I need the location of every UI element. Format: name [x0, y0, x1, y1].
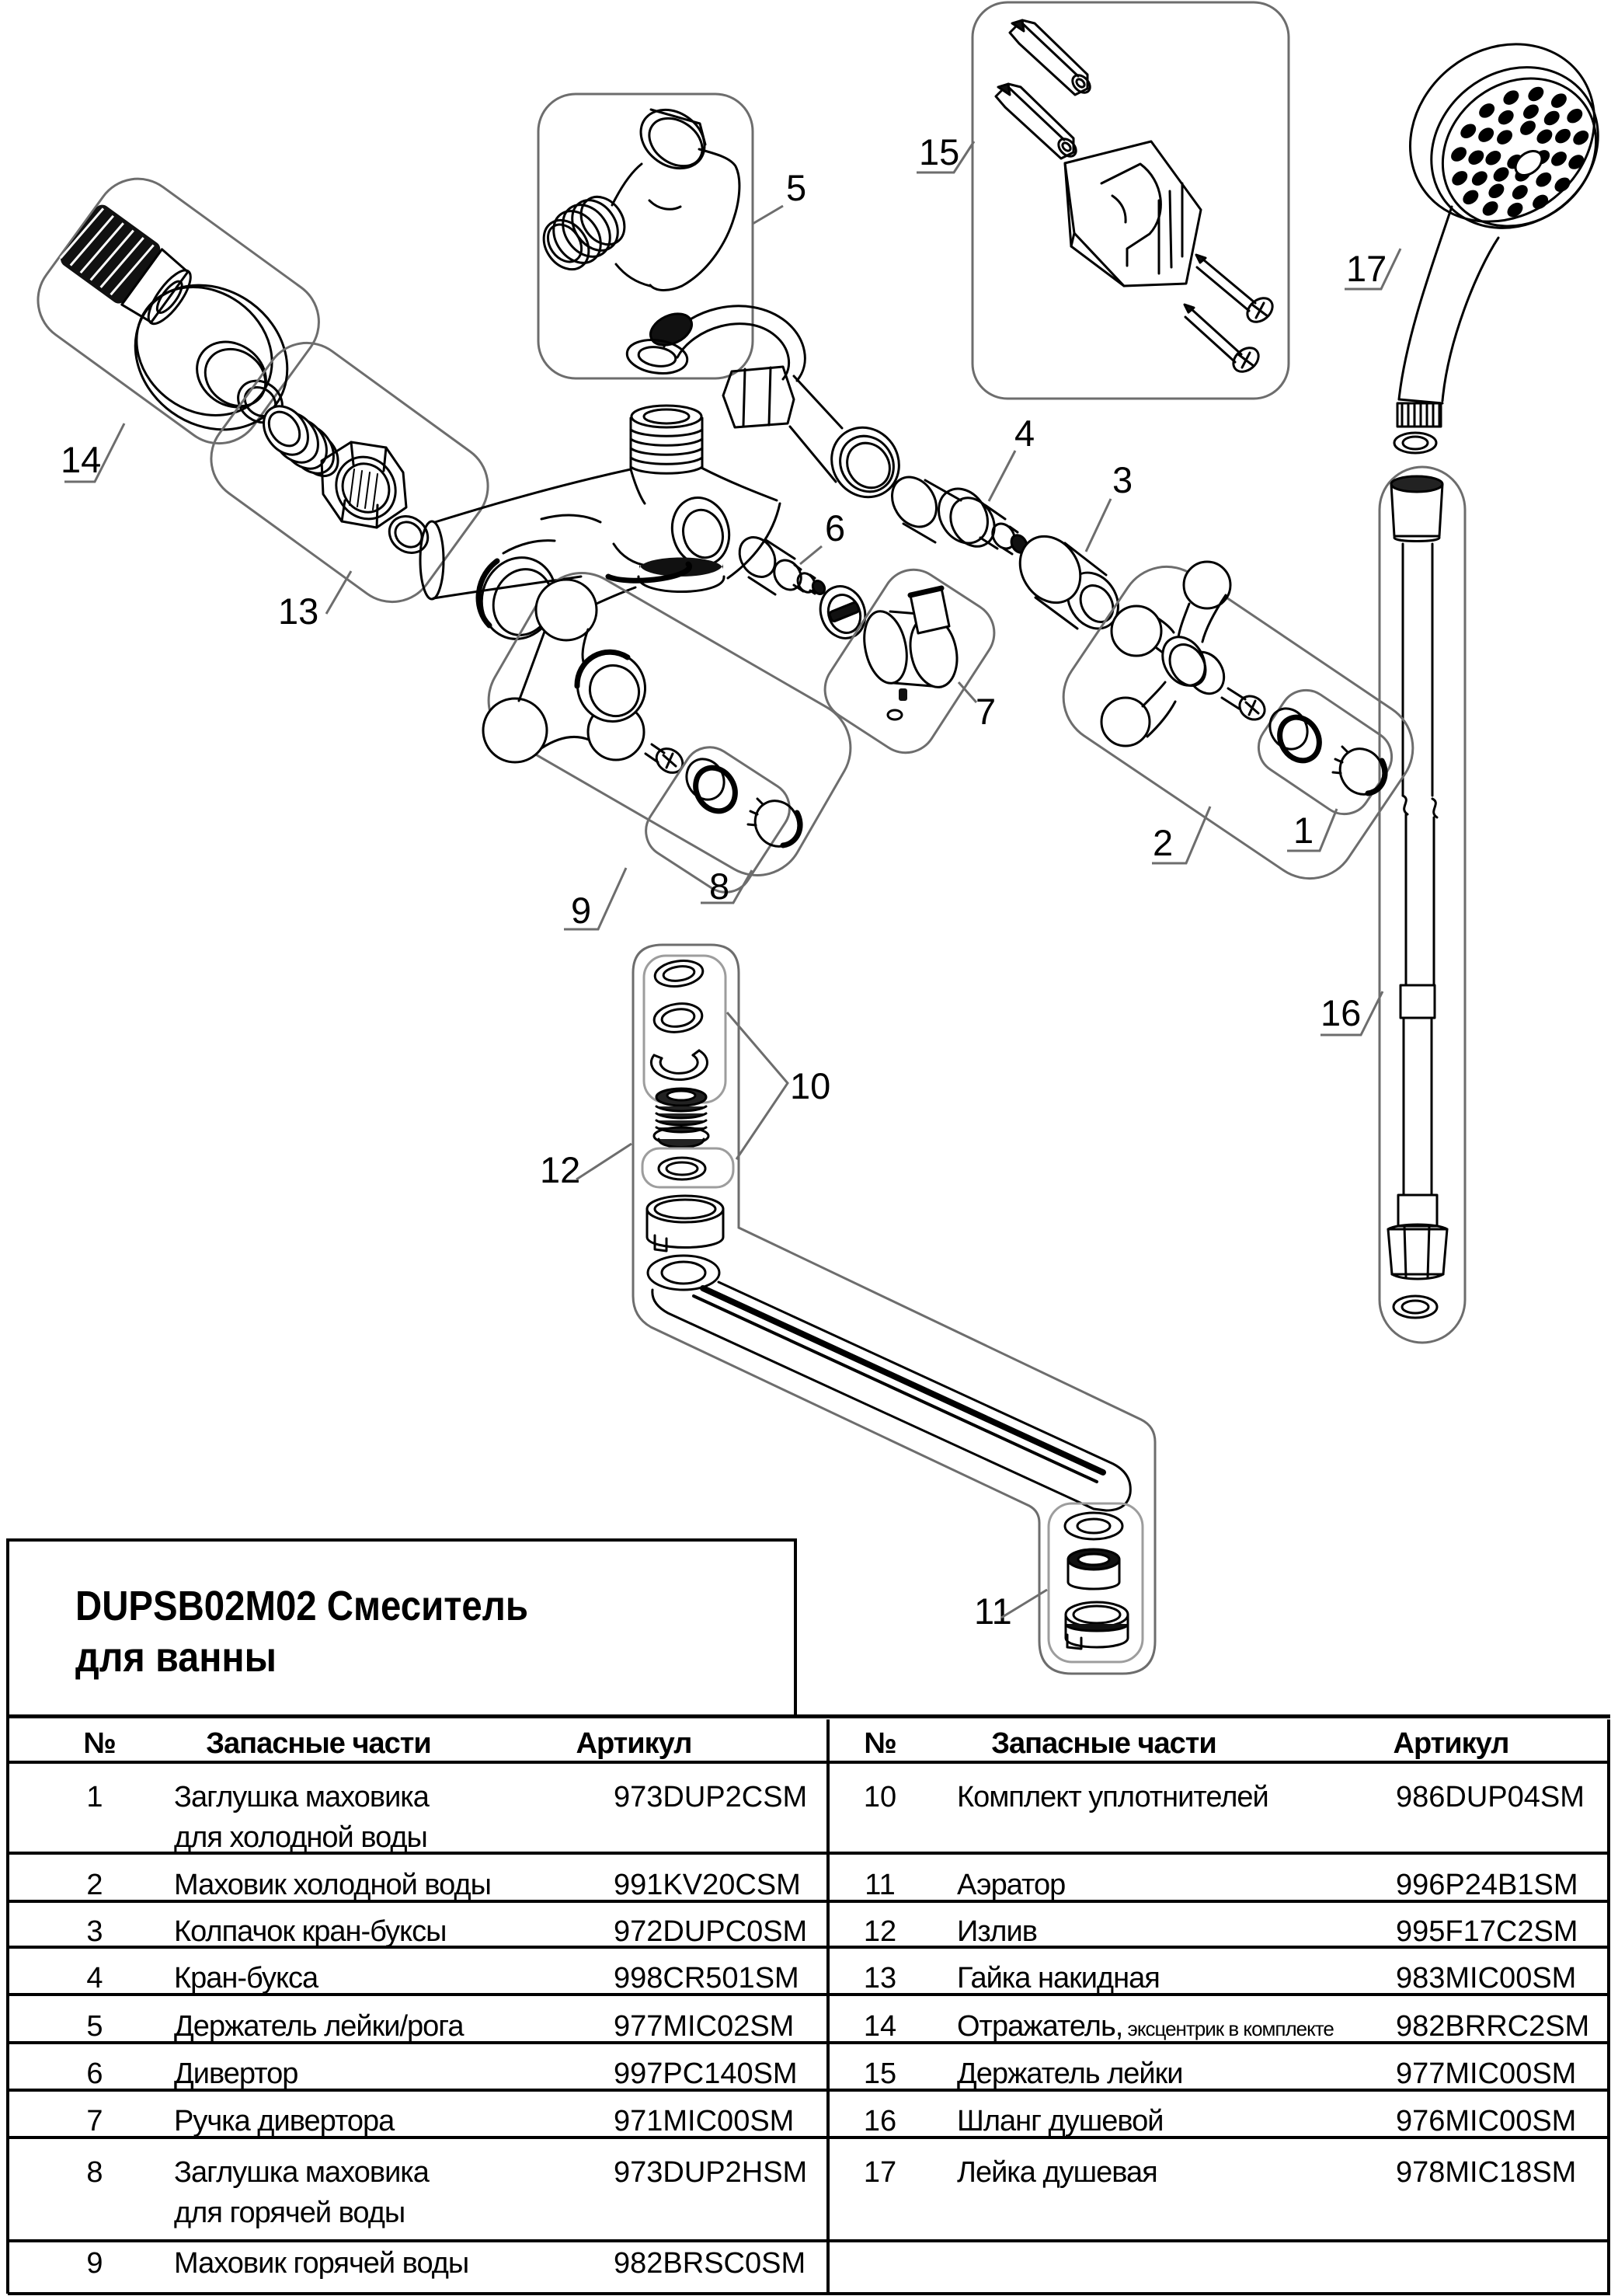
svg-text:8: 8: [709, 866, 729, 907]
svg-text:для ванны: для ванны: [75, 1634, 277, 1681]
svg-text:15: 15: [919, 131, 959, 172]
svg-text:Лейка душевая: Лейка душевая: [957, 2156, 1157, 2189]
svg-text:977MIC00SM: 977MIC00SM: [1396, 2057, 1576, 2090]
svg-text:16: 16: [864, 2105, 896, 2137]
svg-text:12: 12: [540, 1149, 580, 1190]
svg-text:4: 4: [86, 1962, 103, 1995]
svg-text:973DUP2HSM: 973DUP2HSM: [614, 2156, 807, 2189]
svg-text:976MIC00SM: 976MIC00SM: [1396, 2105, 1576, 2137]
svg-text:13: 13: [864, 1962, 896, 1995]
svg-text:7: 7: [976, 691, 996, 732]
svg-text:983MIC00SM: 983MIC00SM: [1396, 1962, 1576, 1995]
svg-text:4: 4: [1014, 413, 1035, 454]
svg-text:№: №: [864, 1727, 896, 1760]
svg-text:Ручка дивертора: Ручка дивертора: [174, 2105, 395, 2137]
svg-text:6: 6: [825, 507, 845, 549]
svg-text:12: 12: [864, 1915, 896, 1948]
svg-text:15: 15: [864, 2057, 896, 2090]
svg-text:Запасные части: Запасные части: [991, 1727, 1216, 1760]
svg-text:Артикул: Артикул: [576, 1727, 692, 1760]
svg-text:998CR501SM: 998CR501SM: [614, 1962, 799, 1995]
svg-text:2: 2: [86, 1869, 103, 1901]
svg-text:6: 6: [86, 2057, 103, 2090]
svg-text:3: 3: [86, 1915, 103, 1948]
svg-text:DUPSB02M02 Смеситель: DUPSB02M02 Смеситель: [75, 1583, 528, 1629]
svg-text:995F17C2SM: 995F17C2SM: [1396, 1915, 1578, 1948]
svg-text:Шланг душевой: Шланг душевой: [957, 2105, 1163, 2137]
svg-text:17: 17: [1346, 248, 1387, 289]
svg-text:991KV20CSM: 991KV20CSM: [614, 1869, 801, 1901]
svg-text:14: 14: [864, 2010, 896, 2043]
svg-text:10: 10: [790, 1065, 830, 1106]
svg-text:1: 1: [1293, 810, 1314, 851]
svg-text:Заглушка маховика: Заглушка маховика: [174, 1781, 430, 1813]
svg-text:971MIC00SM: 971MIC00SM: [614, 2105, 794, 2137]
svg-text:9: 9: [86, 2247, 103, 2280]
svg-text:2: 2: [1153, 822, 1173, 863]
svg-text:10: 10: [864, 1781, 896, 1813]
svg-text:996P24B1SM: 996P24B1SM: [1396, 1869, 1578, 1901]
svg-text:Запасные части: Запасные части: [206, 1727, 431, 1760]
svg-text:7: 7: [86, 2105, 103, 2137]
svg-text:978MIC18SM: 978MIC18SM: [1396, 2156, 1576, 2189]
svg-text:8: 8: [86, 2156, 103, 2189]
svg-text:5: 5: [786, 167, 806, 208]
svg-text:1: 1: [86, 1781, 103, 1813]
svg-text:Дивертор: Дивертор: [174, 2057, 298, 2090]
svg-text:Артикул: Артикул: [1394, 1727, 1509, 1760]
svg-text:3: 3: [1112, 459, 1133, 500]
svg-text:Маховик горячей воды: Маховик горячей воды: [174, 2247, 468, 2280]
svg-text:997PC140SM: 997PC140SM: [614, 2057, 798, 2090]
svg-text:972DUPC0SM: 972DUPC0SM: [614, 1915, 807, 1948]
svg-text:Заглушка маховика: Заглушка маховика: [174, 2156, 430, 2189]
svg-text:Держатель лейки/рога: Держатель лейки/рога: [174, 2010, 465, 2043]
svg-text:11: 11: [974, 1590, 1012, 1632]
svg-text:977MIC02SM: 977MIC02SM: [614, 2010, 794, 2043]
svg-text:№: №: [83, 1727, 115, 1760]
svg-text:9: 9: [571, 890, 591, 931]
svg-text:Кран-букса: Кран-букса: [174, 1962, 319, 1995]
svg-text:11: 11: [865, 1869, 895, 1901]
svg-text:Гайка накидная: Гайка накидная: [957, 1962, 1160, 1995]
svg-text:для горячей воды: для горячей воды: [174, 2197, 405, 2229]
svg-text:Маховик холодной воды: Маховик холодной воды: [174, 1869, 491, 1901]
svg-text:Комплект уплотнителей: Комплект уплотнителей: [957, 1781, 1268, 1813]
svg-text:982BRSC0SM: 982BRSC0SM: [614, 2247, 806, 2280]
svg-text:Излив: Излив: [957, 1915, 1037, 1948]
svg-text:986DUP04SM: 986DUP04SM: [1396, 1781, 1585, 1813]
svg-text:14: 14: [61, 439, 101, 480]
svg-text:Аэратор: Аэратор: [957, 1869, 1065, 1901]
svg-text:982BRRC2SM: 982BRRC2SM: [1396, 2010, 1589, 2043]
svg-text:17: 17: [864, 2156, 896, 2189]
svg-text:16: 16: [1320, 992, 1361, 1033]
svg-text:Держатель лейки: Держатель лейки: [957, 2057, 1182, 2090]
svg-text:973DUP2CSM: 973DUP2CSM: [614, 1781, 807, 1813]
svg-text:Колпачок кран-буксы: Колпачок кран-буксы: [174, 1915, 446, 1948]
svg-text:5: 5: [86, 2010, 103, 2043]
svg-text:для холодной воды: для холодной воды: [174, 1821, 427, 1854]
svg-text:13: 13: [278, 591, 318, 632]
